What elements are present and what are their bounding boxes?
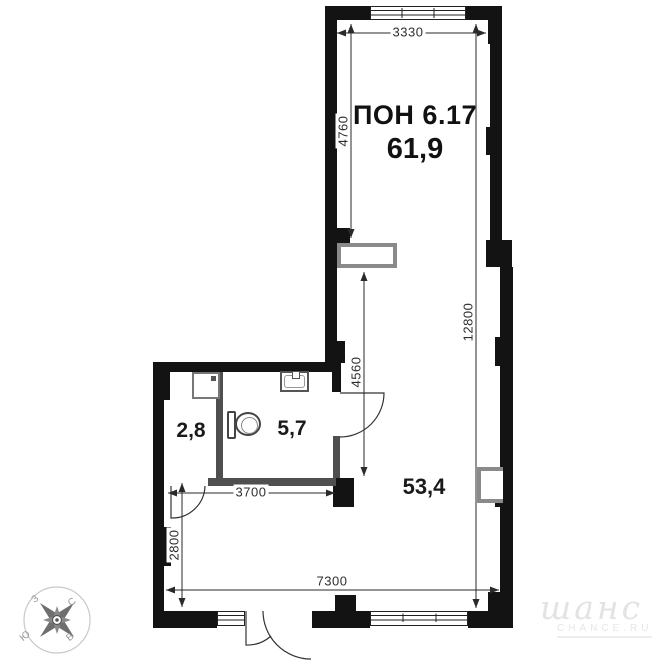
wall-left-upper — [325, 6, 337, 363]
room-area-5-7: 5,7 — [277, 417, 306, 441]
watermark-domain: CHANCE.RU — [557, 623, 652, 638]
wall-bottom-b — [312, 611, 370, 628]
dimension-label-bathroom-width: 3700 — [234, 485, 269, 500]
shower-tray-icon — [192, 372, 220, 399]
wall-right-lower — [500, 267, 513, 611]
shower-drain-dot — [211, 376, 216, 381]
door-bathroom-5-7 — [340, 393, 384, 437]
dimension-label-middle-height: 4560 — [349, 355, 364, 390]
compass-label-north: С — [66, 596, 79, 609]
dimension-label-lower-left-height: 2800 — [167, 528, 182, 563]
dimension-label-bottom-width: 7300 — [315, 574, 350, 589]
compass-label-south: Ю — [18, 629, 33, 644]
sink-tap — [292, 371, 300, 379]
window-top — [370, 6, 466, 20]
duct-shaft — [337, 243, 397, 268]
window-bottom-right — [370, 611, 468, 626]
compass-star-diagonal — [40, 603, 74, 637]
wall-bottom-a — [153, 611, 217, 628]
dimension-label-upper-left-height: 4760 — [336, 114, 351, 149]
compass-star-axis — [43, 606, 71, 634]
wall-right-jog — [486, 240, 512, 267]
door-bathroom-2-8 — [171, 486, 205, 518]
toilet-bowl-inner — [241, 417, 258, 434]
wall-right-pilaster-2 — [495, 337, 513, 366]
wall-bottom-c — [468, 611, 513, 628]
wall-top-right-step — [488, 20, 502, 44]
wall-left-lower — [153, 363, 164, 611]
dimension-label-top-width: 3330 — [391, 25, 426, 40]
entrance-door-right-leaf — [263, 611, 311, 659]
unit-total-area: 61,9 — [340, 133, 490, 166]
compass-label-east: В — [64, 631, 76, 644]
watermark-logo: шанс — [540, 588, 643, 627]
room-area-2-8: 2,8 — [176, 419, 205, 443]
unit-title: ПОН 6.17 — [340, 100, 490, 131]
wall-bathroom-pier — [333, 478, 354, 507]
compass-rose: З С Ю В — [18, 587, 90, 653]
wall-niche — [477, 467, 503, 503]
wall-left-upper-widening — [325, 341, 345, 363]
sink-icon — [280, 371, 309, 392]
entrance-door-left-leaf — [246, 611, 271, 645]
floor-plan: З С Ю В ПОН 6.17 61,9 2,8 5,7 53,4 3330 … — [0, 0, 670, 670]
wall-left-lower-thick — [153, 363, 170, 400]
wall-bathroom-top — [153, 362, 341, 372]
dimension-label-right-height: 12800 — [461, 301, 476, 344]
wall-left-upper-pier — [337, 228, 350, 243]
compass-label-west: З — [29, 593, 41, 605]
wall-bottom-pier — [335, 595, 356, 611]
wall-bathroom-right-top — [332, 372, 341, 392]
toilet-bowl-icon — [235, 412, 261, 436]
wall-bathroom-right-bottom — [333, 436, 340, 478]
window-bottom-left — [217, 611, 245, 626]
room-area-53-4: 53,4 — [403, 474, 446, 500]
wall-bathroom-bottom — [208, 478, 336, 486]
